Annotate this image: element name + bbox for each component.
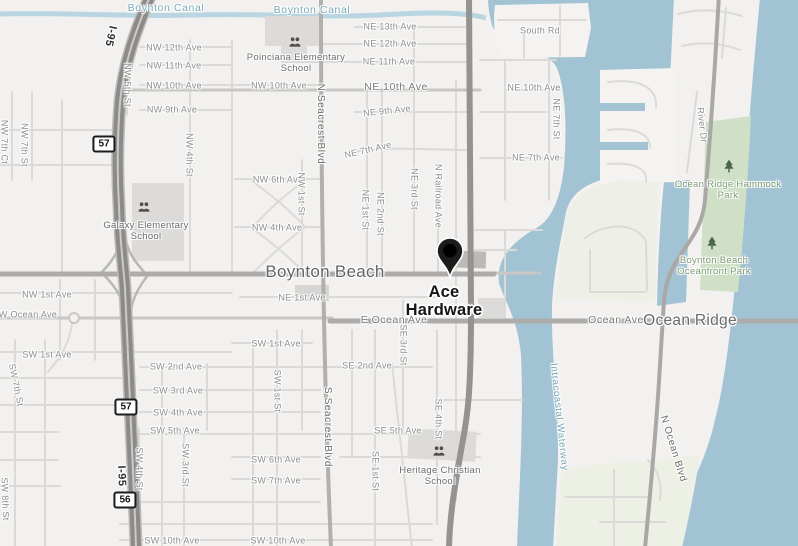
map-label-nw-10th-ave-4: NW 10th Ave bbox=[146, 81, 202, 92]
map-label-n-railroad-ave-43: N Railroad Ave bbox=[433, 164, 444, 228]
map-label-se-4th-st-50: SE 4th St bbox=[433, 399, 444, 440]
route-shield-56-2: 56 bbox=[113, 492, 136, 509]
map-label-sw-6th-ave-31: SW 6th Ave bbox=[251, 455, 301, 466]
school-icon bbox=[433, 446, 446, 457]
route-shield-57-1: 57 bbox=[114, 399, 137, 416]
map-label-ne-7th-ave-12: NE 7th Ave bbox=[343, 139, 392, 160]
map-label-river-dr-55: River Dr bbox=[695, 107, 709, 143]
map-label-boynton-canal-1: Boynton Canal bbox=[274, 4, 351, 16]
map-label-sw-1st-st-47: SW 1st St bbox=[272, 370, 283, 413]
map-label-ne-11th-ave-9: NE 11th Ave bbox=[363, 57, 416, 68]
map-label-se-5th-ave-30: SE 5th Ave bbox=[374, 426, 421, 437]
map-label-ne-9th-ave-11: NE 9th Ave bbox=[363, 103, 412, 119]
map-label-sw-10th-ave-33: SW 10th Ave bbox=[144, 536, 199, 546]
map-label-sw-1st-ave-23: SW 1st Ave bbox=[22, 350, 71, 361]
map-label-ocean-ridge-hammock-park-65: Ocean Ridge Hammock Park bbox=[674, 179, 782, 201]
map-pin-icon[interactable] bbox=[433, 236, 467, 281]
map-label-nw-7th-ct-35: NW 7th Ct bbox=[0, 120, 9, 164]
map-label-sw-4th-ave-27: SW 4th Ave bbox=[153, 408, 203, 419]
tree-icon bbox=[724, 160, 735, 173]
map-label-ne-1st-ave-19: NE 1st Ave bbox=[278, 293, 325, 304]
tree-icon bbox=[707, 237, 718, 250]
map-label-sw-7th-ave-32: SW 7th Ave bbox=[251, 476, 301, 487]
map-label-sw-3rd-ave-26: SW 3rd Ave bbox=[153, 386, 203, 397]
map-label-se-3rd-st-49: SE 3rd St bbox=[398, 324, 409, 365]
map-label-nw-11th-ave-3: NW 11th Ave bbox=[147, 61, 202, 72]
map-label-nw-7th-st-36: NW 7th St bbox=[19, 123, 30, 167]
map-label-galaxy-elementary-school-63: Galaxy Elementary School bbox=[89, 220, 203, 242]
map-label-ne-12th-ave-8: NE 12th Ave bbox=[363, 39, 416, 50]
map-label-ne-10th-ave-13: NE 10th Ave bbox=[507, 83, 560, 94]
map-label-ocean-ave-22: Ocean Ave bbox=[588, 314, 644, 326]
map-label-boynton-beach-oceanfront-park-66: Boynton Beach Oceanfront Park bbox=[660, 255, 768, 277]
map-label-ne-1st-st-40: NE 1st St bbox=[360, 190, 371, 231]
map-label-i-95-59: I-95 bbox=[114, 465, 128, 486]
map-label-sw-1st-ave-24: SW 1st Ave bbox=[251, 339, 300, 350]
map-view[interactable]: Boynton CanalBoynton CanalNW 12th AveNW … bbox=[0, 0, 798, 546]
map-label-nw-5th-st-37: NW 5th St bbox=[122, 63, 133, 107]
school-icon bbox=[289, 37, 302, 48]
map-label-e-ocean-ave-21: E Ocean Ave bbox=[361, 314, 428, 326]
map-label-nw-1st-st-39: NW 1st St bbox=[296, 172, 307, 215]
map-label-intracoastal-waterway-57: Intracoastal Waterway bbox=[548, 363, 570, 472]
map-label-poinciana-elementary-school-62: Poinciana Elementary School bbox=[239, 52, 353, 74]
map-label-se-1st-st-48: SE 1st St bbox=[370, 451, 381, 491]
map-label-sw-8th-st-54: SW 8th St bbox=[0, 477, 11, 521]
map-label-sw-5th-ave-28: SW 5th Ave bbox=[150, 426, 200, 437]
map-label-ocean-ridge-61: Ocean Ridge bbox=[643, 312, 737, 330]
map-label-nw-10th-ave-5: NW 10th Ave bbox=[251, 81, 307, 92]
map-label-ne-10th-ave-10: NE 10th Ave bbox=[364, 81, 428, 93]
map-label-sw-3rd-st-52: SW 3rd St bbox=[180, 443, 191, 487]
map-label-sw-10th-ave-34: SW 10th Ave bbox=[250, 536, 305, 546]
map-label-i-95-58: I-95 bbox=[101, 24, 118, 47]
map-label-boynton-canal-0: Boynton Canal bbox=[128, 2, 205, 14]
map-label-boynton-beach-60: Boynton Beach bbox=[265, 262, 384, 282]
map-label-n-ocean-blvd-56: N Ocean Blvd bbox=[657, 414, 688, 483]
map-label-ne-7th-ave-14: NE 7th Ave bbox=[512, 153, 560, 164]
school-icon bbox=[138, 202, 151, 213]
map-label-sw-4th-st-51: SW 4th St bbox=[134, 447, 145, 490]
map-label-south-rd-15: South Rd bbox=[520, 26, 560, 37]
map-label-nw-12th-ave-2: NW 12th Ave bbox=[146, 43, 202, 54]
map-label-se-2nd-ave-29: SE 2nd Ave bbox=[342, 361, 392, 372]
map-label-ne-13th-ave-7: NE 13th Ave bbox=[363, 22, 416, 33]
map-label-w-ocean-ave-20: W Ocean Ave bbox=[0, 310, 57, 321]
map-label-s-seacrest-blvd-46: S Seacrest Blvd bbox=[321, 387, 333, 467]
map-label-nw-4th-st-38: NW 4th St bbox=[184, 133, 195, 177]
map-label-nw-1st-ave-18: NW 1st Ave bbox=[22, 290, 72, 301]
map-labels-layer: Boynton CanalBoynton CanalNW 12th AveNW … bbox=[0, 0, 798, 546]
map-label-nw-9th-ave-6: NW 9th Ave bbox=[147, 105, 197, 116]
map-label-heritage-christian-school-64: Heritage Christian School bbox=[383, 465, 497, 487]
map-label-sw-2nd-ave-25: SW 2nd Ave bbox=[150, 362, 202, 373]
map-label-ne-7th-st-44: NE 7th St bbox=[551, 98, 562, 139]
map-label-sw-7th-st-53: SW 7th St bbox=[6, 363, 25, 407]
map-label-nw-4th-ave-17: NW 4th Ave bbox=[252, 223, 302, 234]
map-label-n-seacrest-blvd-45: N Seacrest Blvd bbox=[314, 84, 326, 165]
map-label-ne-3rd-st-42: NE 3rd St bbox=[409, 168, 420, 210]
map-label-ne-2nd-st-41: NE 2nd St bbox=[375, 192, 386, 236]
route-shield-57-0: 57 bbox=[92, 136, 115, 153]
